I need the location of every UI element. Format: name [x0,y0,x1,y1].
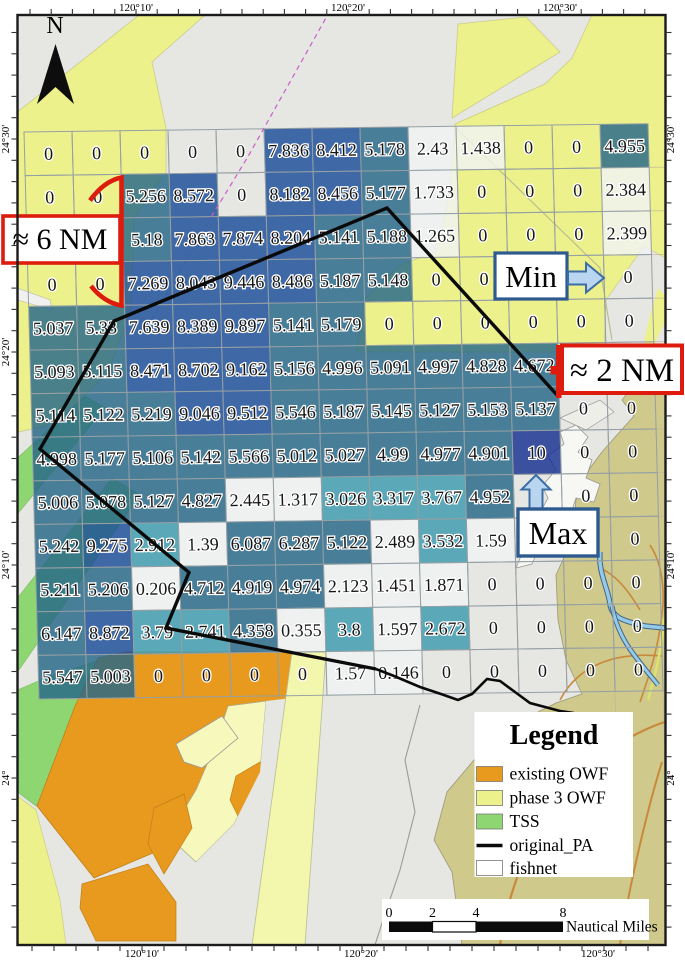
svg-text:3.767: 3.767 [421,487,462,508]
svg-text:1.317: 1.317 [277,489,318,510]
svg-text:5.187: 5.187 [323,401,364,422]
svg-text:0: 0 [431,269,441,289]
svg-text:4: 4 [473,906,480,921]
svg-text:7.836: 7.836 [268,140,309,161]
svg-text:phase 3 OWF: phase 3 OWF [510,788,607,808]
svg-text:9.275: 9.275 [86,535,127,556]
svg-text:24°30': 24°30' [665,125,677,153]
svg-text:0: 0 [524,137,534,157]
svg-text:7.863: 7.863 [174,229,215,250]
svg-text:5.18: 5.18 [131,229,163,249]
svg-text:4.997: 4.997 [418,356,459,377]
svg-text:5.141: 5.141 [273,315,314,336]
svg-text:4.952: 4.952 [469,487,510,508]
svg-text:fishnet: fishnet [510,858,558,878]
svg-text:2.399: 2.399 [606,223,647,244]
svg-text:3.8: 3.8 [338,620,361,640]
svg-text:24°20': 24°20' [0,338,12,366]
svg-text:2.445: 2.445 [229,490,270,511]
svg-text:0: 0 [583,573,593,593]
svg-text:5.242: 5.242 [38,536,79,557]
svg-text:0: 0 [572,137,582,157]
svg-text:5.127: 5.127 [133,491,174,512]
svg-text:8.456: 8.456 [317,183,358,204]
svg-text:6.087: 6.087 [230,533,271,554]
svg-text:0.206: 0.206 [136,578,177,599]
svg-text:4.977: 4.977 [420,444,461,465]
svg-text:0: 0 [298,664,308,684]
svg-text:24°10': 24°10' [0,551,12,579]
svg-text:2.672: 2.672 [425,618,466,639]
svg-text:1.871: 1.871 [424,575,465,596]
svg-text:10: 10 [527,442,546,462]
svg-text:original_PA: original_PA [510,835,594,855]
svg-text:1.39: 1.39 [187,534,219,554]
svg-text:0: 0 [579,398,589,418]
svg-text:1.438: 1.438 [460,138,501,159]
svg-text:2.43: 2.43 [417,138,449,158]
svg-text:120°30': 120°30' [543,2,577,14]
svg-text:5.127: 5.127 [419,400,460,421]
svg-text:0: 0 [188,142,198,162]
svg-text:0: 0 [442,662,452,682]
svg-text:5.106: 5.106 [132,447,173,468]
svg-text:0: 0 [384,314,394,334]
svg-text:≈ 2 NM: ≈ 2 NM [570,353,674,389]
svg-text:0: 0 [538,661,548,681]
svg-text:4.901: 4.901 [468,443,509,464]
svg-text:2.489: 2.489 [374,531,415,552]
svg-text:0: 0 [487,574,497,594]
svg-text:8.389: 8.389 [177,316,218,337]
svg-text:0: 0 [535,573,545,593]
svg-text:120°30': 120°30' [581,948,615,960]
svg-text:5.177: 5.177 [84,448,125,469]
svg-text:5.122: 5.122 [83,404,124,425]
svg-text:5.566: 5.566 [228,446,269,467]
svg-text:3.532: 3.532 [422,531,463,552]
svg-text:3.317: 3.317 [373,488,414,509]
svg-text:0: 0 [154,666,164,686]
svg-text:1.451: 1.451 [376,575,417,596]
svg-text:24°: 24° [0,770,12,785]
svg-text:0: 0 [634,659,644,679]
svg-text:2.123: 2.123 [328,576,369,597]
svg-text:1.59: 1.59 [475,530,507,550]
svg-text:8.702: 8.702 [178,360,219,381]
svg-text:0: 0 [630,528,640,548]
svg-text:5.177: 5.177 [365,183,406,204]
svg-text:8.872: 8.872 [89,623,130,644]
svg-text:24°: 24° [665,770,677,785]
svg-text:24°10': 24°10' [665,551,677,579]
svg-text:0: 0 [432,313,442,333]
svg-text:9.046: 9.046 [179,403,220,424]
svg-text:0: 0 [47,275,57,295]
svg-text:0: 0 [573,180,583,200]
svg-text:5.256: 5.256 [125,186,166,207]
svg-text:0: 0 [576,311,586,331]
svg-text:8.412: 8.412 [316,140,357,161]
svg-text:0: 0 [45,187,55,207]
svg-text:0: 0 [629,485,639,505]
svg-text:24°30': 24°30' [0,125,12,153]
svg-text:0: 0 [537,617,547,637]
svg-text:5.148: 5.148 [368,270,409,291]
svg-text:5.156: 5.156 [274,358,315,379]
svg-text:0: 0 [479,269,489,289]
svg-text:6.147: 6.147 [41,623,82,644]
svg-text:120°20': 120°20' [344,948,378,960]
svg-text:4.827: 4.827 [181,490,222,511]
svg-text:5.188: 5.188 [366,226,407,247]
svg-text:5.091: 5.091 [370,357,411,378]
svg-text:0: 0 [633,616,643,636]
svg-text:1.597: 1.597 [377,619,418,640]
svg-text:0: 0 [631,572,641,592]
svg-text:0: 0 [386,906,393,921]
svg-text:120°10': 120°10' [119,2,153,14]
svg-text:7.269: 7.269 [128,273,169,294]
svg-text:2.384: 2.384 [605,179,646,200]
svg-text:4.99: 4.99 [377,444,409,464]
svg-text:0: 0 [92,143,102,163]
svg-text:5.153: 5.153 [467,399,508,420]
svg-text:0: 0 [250,664,260,684]
svg-text:5.145: 5.145 [371,401,412,422]
svg-text:5.206: 5.206 [88,579,129,600]
svg-text:120°10': 120°10' [125,948,159,960]
svg-text:0: 0 [528,312,538,332]
svg-text:3.026: 3.026 [325,488,366,509]
svg-text:8.182: 8.182 [269,184,310,205]
svg-text:existing OWF: existing OWF [510,764,609,784]
svg-text:0: 0 [580,442,590,462]
svg-text:5.142: 5.142 [180,447,221,468]
svg-text:5.037: 5.037 [33,318,74,339]
svg-text:0: 0 [478,225,488,245]
svg-text:8.204: 8.204 [270,227,311,248]
svg-text:Max: Max [529,515,588,551]
svg-text:0: 0 [574,224,584,244]
svg-text:0: 0 [140,142,150,162]
svg-text:≈ 6 NM: ≈ 6 NM [13,223,108,256]
svg-text:5.003: 5.003 [90,666,131,687]
svg-text:0: 0 [628,441,638,461]
svg-text:Nautical Miles: Nautical Miles [566,919,658,936]
svg-text:2: 2 [429,906,436,921]
svg-text:5.006: 5.006 [37,492,78,513]
svg-text:N: N [46,13,63,39]
svg-text:Min: Min [505,259,557,294]
svg-text:9.162: 9.162 [226,359,267,380]
svg-text:5.012: 5.012 [276,446,317,467]
svg-text:5.093: 5.093 [34,362,75,383]
svg-text:0.355: 0.355 [281,620,322,641]
svg-text:5.219: 5.219 [131,404,172,425]
svg-text:8.471: 8.471 [130,360,171,381]
svg-text:7.639: 7.639 [129,317,170,338]
svg-text:4.712: 4.712 [184,578,225,599]
svg-text:4.919: 4.919 [232,577,273,598]
svg-text:0: 0 [623,267,633,287]
svg-text:7.874: 7.874 [222,228,263,249]
svg-text:5.187: 5.187 [320,270,361,291]
svg-text:9.897: 9.897 [225,315,266,336]
svg-text:0: 0 [525,181,535,201]
svg-text:4.996: 4.996 [322,358,363,379]
svg-text:0: 0 [585,616,595,636]
svg-text:0: 0 [627,398,637,418]
svg-text:0: 0 [624,310,634,330]
svg-text:0: 0 [236,141,246,161]
svg-text:4.955: 4.955 [604,136,645,157]
svg-text:0: 0 [526,224,536,244]
svg-text:5.179: 5.179 [321,314,362,335]
svg-text:0: 0 [477,181,487,201]
svg-text:5.027: 5.027 [324,445,365,466]
svg-text:5.546: 5.546 [275,402,316,423]
svg-text:5.547: 5.547 [42,667,83,688]
svg-text:TSS: TSS [510,811,540,831]
svg-text:6.287: 6.287 [278,533,319,554]
svg-text:0: 0 [237,185,247,205]
svg-text:1.733: 1.733 [413,182,454,203]
svg-text:0: 0 [586,660,596,680]
svg-text:8.572: 8.572 [173,185,214,206]
svg-text:9.512: 9.512 [227,403,268,424]
svg-text:5.122: 5.122 [326,532,367,553]
svg-text:5.178: 5.178 [364,139,405,160]
svg-text:0: 0 [489,618,499,638]
svg-text:5.211: 5.211 [40,580,80,601]
svg-text:5.137: 5.137 [515,399,556,420]
svg-text:120°20': 120°20' [331,2,365,14]
svg-text:0: 0 [581,486,591,506]
svg-text:8.486: 8.486 [272,271,313,292]
svg-text:4.828: 4.828 [466,356,507,377]
svg-text:0: 0 [44,144,54,164]
svg-text:4.358: 4.358 [233,621,274,642]
svg-text:Legend: Legend [510,720,599,751]
svg-text:4.974: 4.974 [280,576,321,597]
svg-text:0: 0 [202,665,212,685]
svg-text:5.141: 5.141 [318,227,359,248]
